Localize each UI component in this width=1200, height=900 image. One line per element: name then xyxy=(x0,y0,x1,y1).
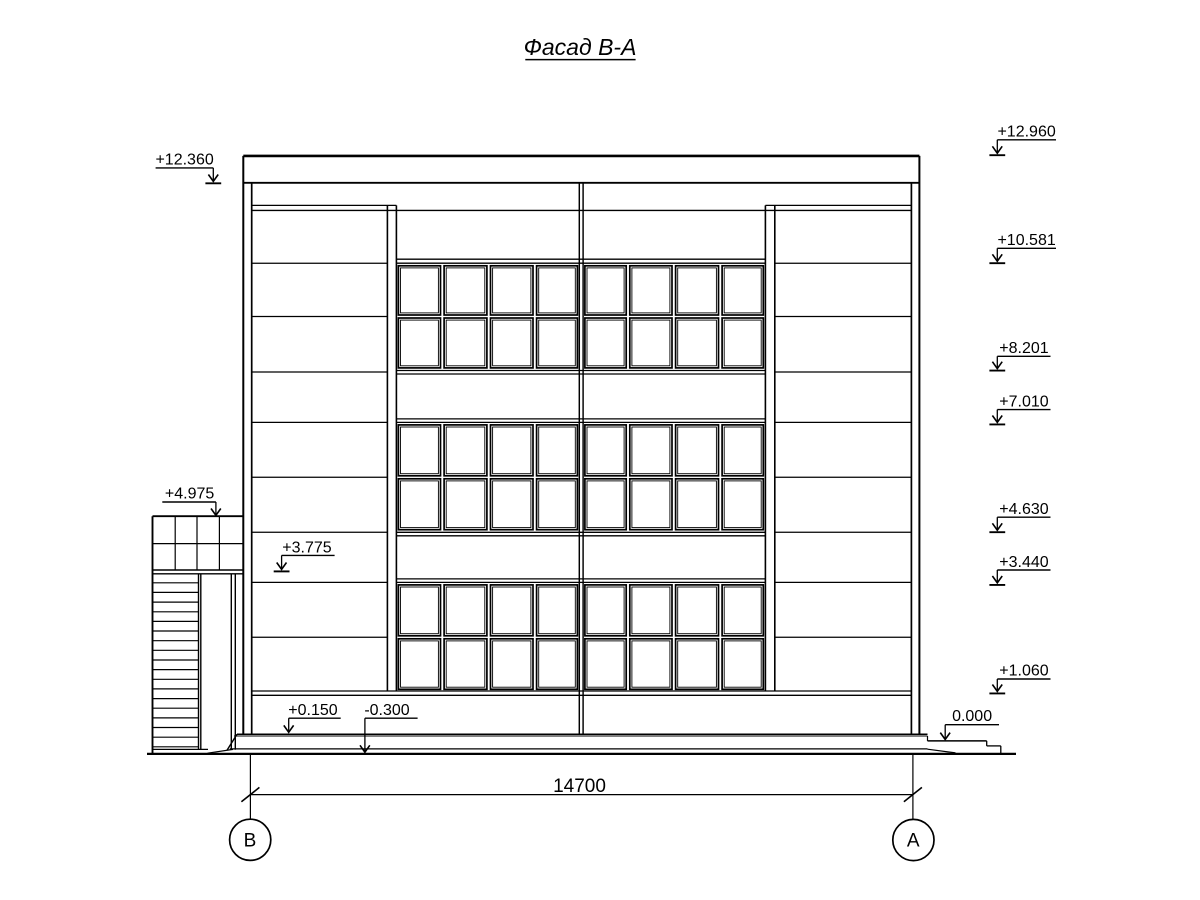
svg-text:+8.201: +8.201 xyxy=(999,340,1048,357)
svg-text:+12.360: +12.360 xyxy=(155,151,213,168)
svg-text:+4.630: +4.630 xyxy=(999,501,1048,518)
svg-text:+12.960: +12.960 xyxy=(997,124,1055,141)
svg-text:+7.010: +7.010 xyxy=(999,393,1048,410)
svg-text:+1.060: +1.060 xyxy=(999,663,1048,680)
svg-text:+4.975: +4.975 xyxy=(165,486,214,503)
svg-text:Фасад В-А: Фасад В-А xyxy=(524,34,637,60)
svg-text:+10.581: +10.581 xyxy=(997,232,1055,249)
svg-text:В: В xyxy=(244,831,257,852)
svg-text:+3.440: +3.440 xyxy=(999,554,1048,571)
svg-text:-0.300: -0.300 xyxy=(364,702,409,719)
svg-text:0.000: 0.000 xyxy=(952,708,992,725)
svg-text:+0.150: +0.150 xyxy=(288,702,337,719)
svg-text:14700: 14700 xyxy=(553,776,606,797)
svg-text:А: А xyxy=(907,831,920,852)
svg-text:+3.775: +3.775 xyxy=(282,539,331,556)
